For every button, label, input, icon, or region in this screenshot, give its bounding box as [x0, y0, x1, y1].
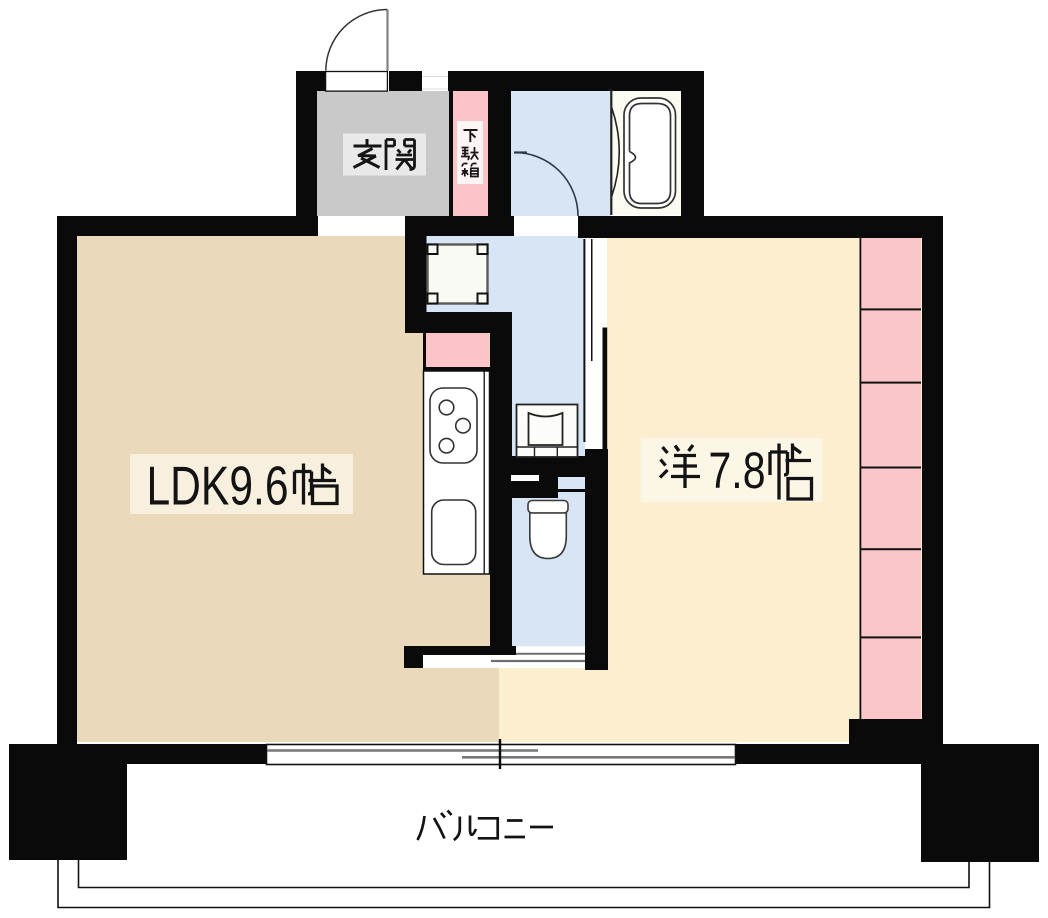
svg-text:7.8: 7.8 [709, 442, 766, 499]
svg-text:LDK9.6: LDK9.6 [147, 455, 289, 517]
